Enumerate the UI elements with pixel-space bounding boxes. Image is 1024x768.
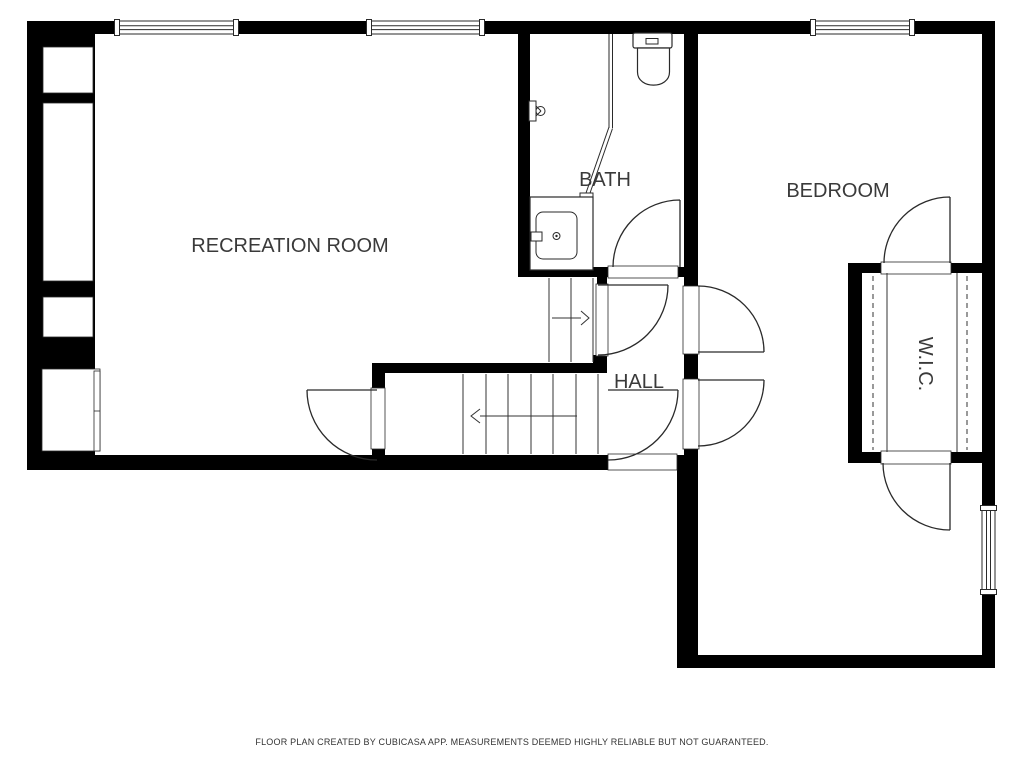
door-frame <box>371 388 385 449</box>
wall <box>684 353 698 380</box>
stairs-lower-flight <box>463 374 598 454</box>
door-frame <box>683 379 699 449</box>
floor-plan-drawing: RECREATION ROOM BATH BEDROOM HALL W.I.C.… <box>0 0 1024 768</box>
door-frame <box>881 451 951 464</box>
wall <box>518 34 530 277</box>
door-swing-stair-top <box>598 285 668 355</box>
door-frame <box>608 266 678 278</box>
windows <box>115 20 997 595</box>
door-frame <box>881 262 951 274</box>
stairs-down-arrow-icon <box>471 409 577 423</box>
window-icon <box>115 20 239 36</box>
door-swing-wic-top <box>884 197 950 263</box>
wall <box>593 355 607 373</box>
wall <box>950 452 983 463</box>
niche <box>43 103 93 281</box>
window-icon <box>367 20 485 36</box>
wall <box>950 263 983 273</box>
wall <box>27 455 608 470</box>
window-icon <box>981 506 997 595</box>
bath-fixtures <box>529 33 672 270</box>
wall <box>372 363 385 389</box>
wall <box>372 363 607 373</box>
niche <box>43 297 93 337</box>
niche <box>43 47 93 93</box>
door-swing-recreation <box>307 390 377 460</box>
room-label-wic: W.I.C. <box>914 337 936 391</box>
room-label-bedroom: BEDROOM <box>786 180 889 202</box>
door-frame <box>608 454 677 470</box>
wall <box>848 263 862 463</box>
door-swing-wic-bottom <box>883 463 950 530</box>
wall <box>597 267 607 285</box>
stairs-upper-flight <box>549 278 593 362</box>
door-swing-bedroom-upper <box>698 286 764 352</box>
wall <box>677 655 995 668</box>
toilet-icon <box>633 33 672 85</box>
shower-head-icon <box>529 101 545 121</box>
door-swing-bedroom-lower <box>698 380 764 446</box>
wall <box>677 455 698 668</box>
footer-disclaimer: FLOOR PLAN CREATED BY CUBICASA APP. MEAS… <box>255 737 768 747</box>
room-label-recreation: RECREATION ROOM <box>191 235 388 257</box>
wall <box>848 452 882 463</box>
window-seat <box>42 369 100 451</box>
door-frame <box>596 284 608 356</box>
floor-plan: RECREATION ROOM BATH BEDROOM HALL W.I.C.… <box>0 0 1024 768</box>
wall <box>684 21 698 287</box>
wall <box>848 263 882 273</box>
door-swing-hall-bottom <box>608 390 678 460</box>
walls <box>27 21 995 668</box>
sink-vanity-icon <box>530 197 593 270</box>
door-frame <box>683 286 699 354</box>
window-icon <box>811 20 915 36</box>
door-swing-bath <box>613 200 680 267</box>
left-wall-niches <box>42 47 100 451</box>
room-label-hall: HALL <box>614 371 664 393</box>
room-label-bath: BATH <box>579 169 631 191</box>
